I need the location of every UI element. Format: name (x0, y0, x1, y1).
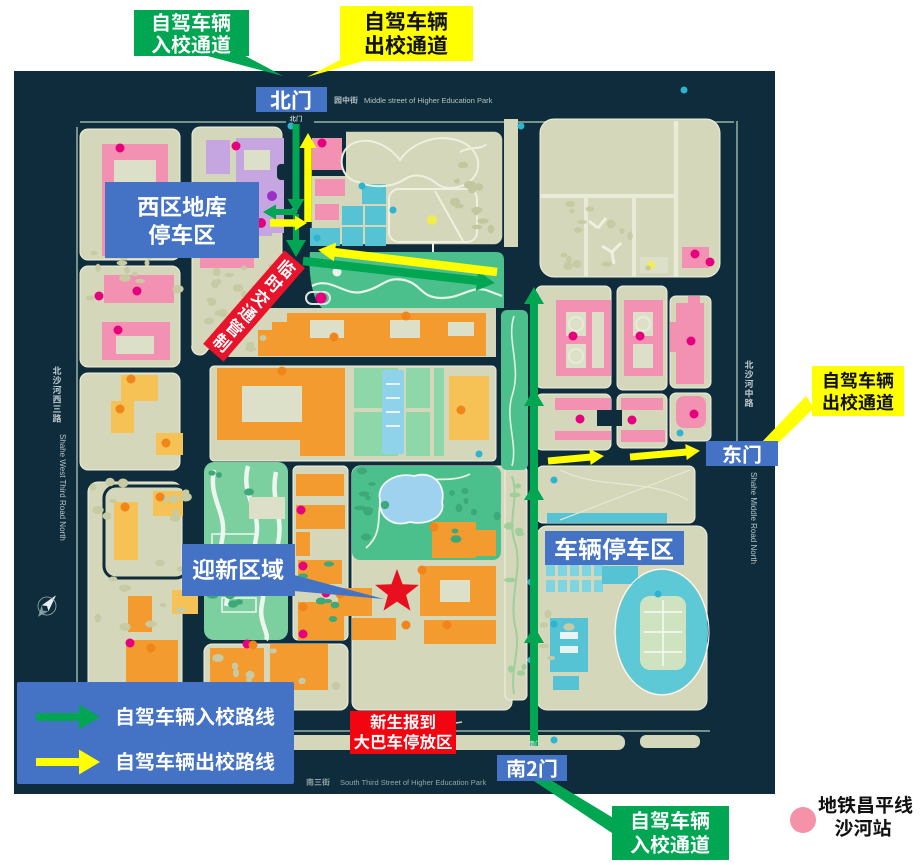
svg-text:Shahe West Third Road North: Shahe West Third Road North (58, 434, 67, 541)
svg-text:South Third Street of Higher E: South Third Street of Higher Education P… (340, 778, 486, 787)
svg-text:Middle street of Higher Educat: Middle street of Higher Education Park (364, 96, 493, 105)
svg-text:Shahe Middle Road North: Shahe Middle Road North (749, 472, 758, 564)
